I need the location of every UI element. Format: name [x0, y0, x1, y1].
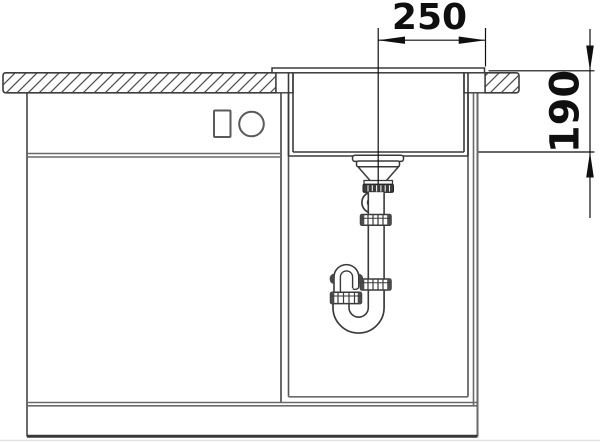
union-nut	[361, 279, 392, 290]
countertop-slab-left	[3, 73, 276, 93]
diagram-canvas: 250 190	[0, 0, 600, 442]
tailpipe-lower	[368, 225, 384, 279]
dimension-190: 190	[479, 29, 595, 218]
countertop	[3, 73, 519, 93]
cabinet-front-symbols	[214, 111, 264, 138]
front-circle-symbol	[239, 112, 264, 137]
arrow-up-icon	[586, 152, 594, 178]
union-nut	[331, 292, 362, 303]
drain-assembly	[330, 155, 404, 333]
countertop-cutout-left	[276, 73, 293, 93]
sink-installation-diagram: 250 190	[0, 0, 600, 442]
front-rect-symbol	[214, 111, 231, 138]
union-nut	[361, 215, 392, 226]
dimension-250-label: 250	[392, 0, 467, 38]
countertop-slab-right	[485, 73, 519, 93]
countertop-cutout-right	[464, 73, 485, 93]
outlet-tab-left	[330, 274, 334, 284]
arrow-down-icon	[586, 46, 594, 71]
dimension-190-label: 190	[543, 70, 589, 154]
tailpipe-upper	[368, 192, 384, 215]
outlet-bend	[330, 265, 364, 293]
cabinet	[0, 93, 600, 441]
